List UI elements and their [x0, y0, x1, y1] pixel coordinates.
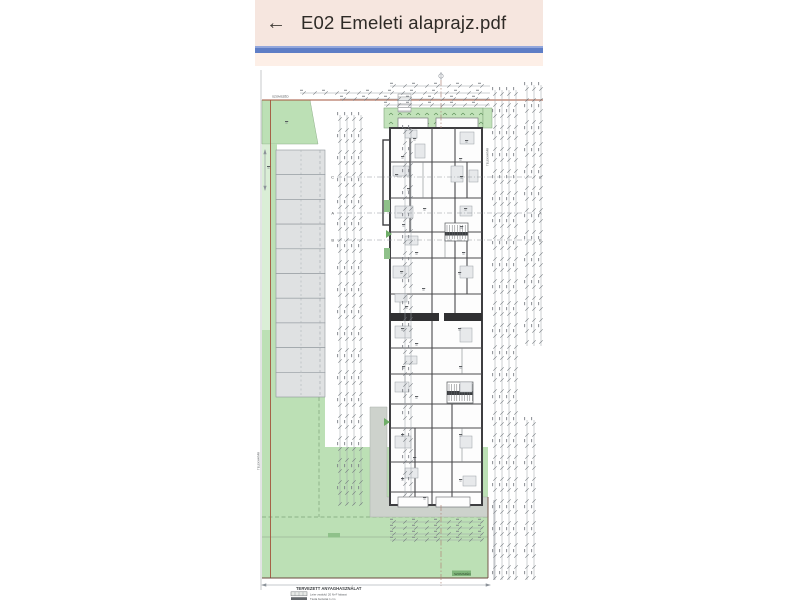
legend-item-1: Leier zsalukő 20 N+F falazat — [310, 592, 347, 596]
bottom-boundary-chip-label: SZOMSZÉD — [454, 571, 472, 576]
section-marker-a-left: A — [331, 211, 334, 216]
pdf-page-viewport[interactable]: C A B C A B SZOMSZÉD SZOMSZÉD TELEKHATÁR… — [255, 66, 543, 600]
app-toolbar: ← E02 Emeleti alaprajz.pdf — [255, 0, 543, 46]
building — [383, 94, 482, 507]
section-marker-b-left: B — [331, 238, 334, 243]
section-marker-c-left: C — [331, 175, 334, 180]
top-boundary-label: SZOMSZÉD — [272, 94, 290, 99]
floorplan-drawing: C A B C A B SZOMSZÉD SZOMSZÉD TELEKHATÁR… — [255, 66, 543, 600]
right-vertical-label: TELEKHATÁR — [486, 148, 490, 166]
document-title: E02 Emeleti alaprajz.pdf — [301, 12, 506, 34]
green-line-chip — [328, 533, 340, 538]
parking-stalls — [276, 150, 325, 397]
legend-heading: TERVEZETT ANYAGHASZNÁLAT — [296, 586, 362, 591]
material-legend: TERVEZETT ANYAGHASZNÁLAT Leier zsalukő 2… — [291, 586, 362, 600]
back-button[interactable]: ← — [259, 6, 293, 40]
loading-progress-bar — [255, 46, 543, 53]
section-marker-b-right: B — [539, 238, 542, 243]
pdf-viewer-window: ← E02 Emeleti alaprajz.pdf — [255, 0, 543, 600]
toolbar-lower-strip — [255, 53, 543, 66]
left-vertical-label: TELEKHATÁR — [257, 452, 261, 470]
